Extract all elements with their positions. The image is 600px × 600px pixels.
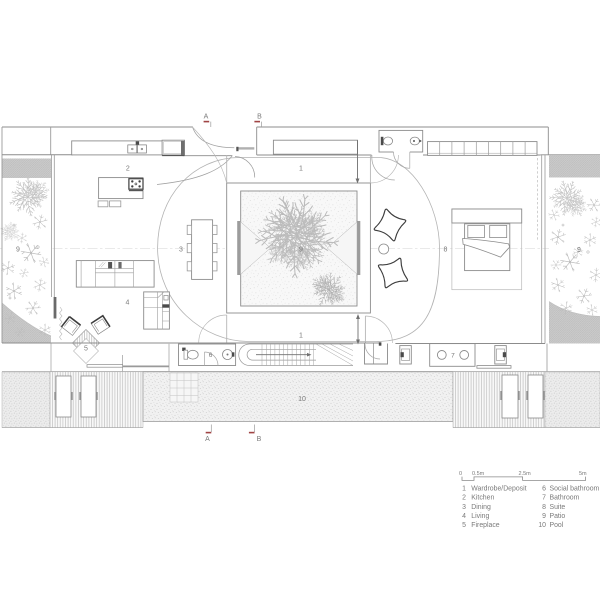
- svg-text:Pool: Pool: [550, 522, 564, 529]
- svg-text:5m: 5m: [579, 471, 587, 477]
- svg-text:Social bathroom: Social bathroom: [550, 486, 600, 493]
- svg-text:9: 9: [577, 247, 581, 254]
- svg-text:8: 8: [542, 504, 546, 511]
- svg-text:4: 4: [125, 300, 129, 307]
- svg-text:B: B: [257, 436, 262, 443]
- svg-text:10: 10: [538, 522, 546, 529]
- svg-text:5: 5: [84, 346, 88, 353]
- svg-text:7: 7: [451, 353, 455, 360]
- svg-text:0.5m: 0.5m: [472, 471, 485, 477]
- svg-text:1: 1: [299, 165, 303, 172]
- svg-text:Fireplace: Fireplace: [471, 522, 500, 529]
- svg-text:6: 6: [209, 352, 213, 359]
- svg-text:8: 8: [444, 247, 448, 254]
- svg-text:Dining: Dining: [471, 504, 491, 511]
- svg-text:Kitchen: Kitchen: [471, 495, 494, 502]
- svg-text:10: 10: [298, 396, 306, 403]
- svg-text:Suite: Suite: [550, 504, 566, 511]
- svg-text:7: 7: [542, 495, 546, 502]
- svg-text:A: A: [204, 114, 209, 121]
- svg-text:Living: Living: [471, 513, 489, 520]
- svg-text:9: 9: [542, 513, 546, 520]
- svg-text:9: 9: [299, 247, 303, 254]
- svg-text:B: B: [257, 114, 262, 121]
- svg-text:Wardrobe/Deposit: Wardrobe/Deposit: [471, 486, 526, 493]
- svg-text:4: 4: [462, 513, 466, 520]
- svg-text:2: 2: [462, 495, 466, 502]
- svg-text:3: 3: [179, 247, 183, 254]
- svg-text:1: 1: [299, 333, 303, 340]
- svg-text:2.5m: 2.5m: [519, 471, 532, 477]
- svg-text:Patio: Patio: [550, 513, 566, 520]
- svg-text:A: A: [205, 436, 210, 443]
- svg-text:Bathroom: Bathroom: [550, 495, 580, 502]
- svg-text:6: 6: [542, 486, 546, 493]
- svg-text:2: 2: [126, 165, 130, 172]
- svg-text:1: 1: [462, 486, 466, 493]
- svg-text:9: 9: [16, 247, 20, 254]
- svg-text:5: 5: [462, 522, 466, 529]
- svg-text:0: 0: [459, 471, 462, 477]
- svg-text:3: 3: [462, 504, 466, 511]
